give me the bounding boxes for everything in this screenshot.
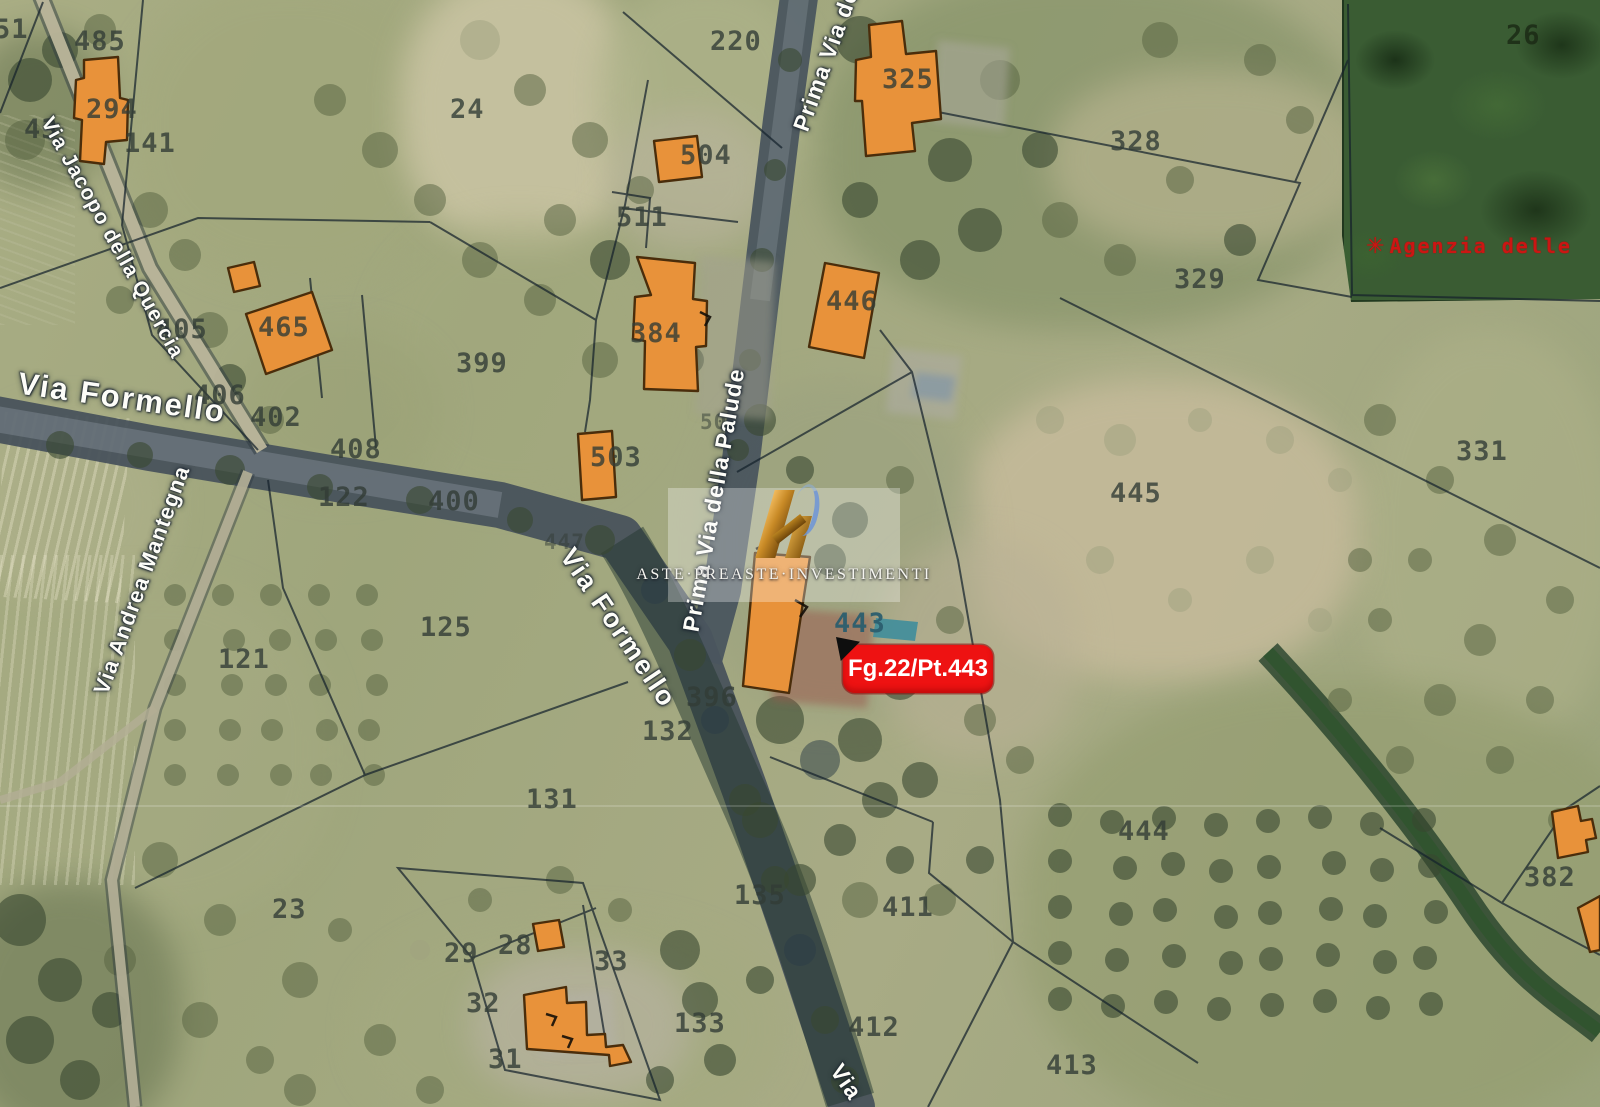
parcel-number-384: 384 — [630, 318, 682, 349]
parcel-number-121: 121 — [218, 644, 270, 675]
parcel-number-26: 26 — [1506, 20, 1541, 51]
parcel-number-131: 131 — [526, 784, 578, 815]
parcel-number-485: 485 — [74, 26, 126, 57]
parcel-number-51: 51 — [0, 14, 29, 45]
parcel-number-408: 408 — [330, 434, 382, 465]
parcel-number-325: 325 — [882, 64, 934, 95]
watermark: Aste·Preaste·Investimenti — [668, 488, 900, 602]
parcel-number-135: 135 — [734, 880, 786, 911]
parcel-number-122: 122 — [318, 482, 370, 513]
parcel-number-400: 400 — [428, 486, 480, 517]
watermark-brand: Aste·Preaste·Investimenti — [636, 566, 931, 584]
building-382-annex — [1578, 896, 1600, 952]
parcel-number-402: 402 — [250, 402, 302, 433]
building-465-annex — [228, 262, 260, 292]
parcel-number-399: 399 — [456, 348, 508, 379]
parcel-number-511: 511 — [616, 202, 668, 233]
parcel-number-141: 141 — [124, 128, 176, 159]
parcel-number-382: 382 — [1524, 862, 1576, 893]
parcel-number-32: 32 — [466, 988, 501, 1019]
parcel-number-443: 443 — [834, 608, 886, 639]
parcel-number-29: 29 — [444, 938, 479, 969]
parcel-number-132: 132 — [642, 716, 694, 747]
parcel-number-396: 396 — [686, 682, 738, 713]
minor-paths — [0, 0, 262, 1107]
parcel-pin-label[interactable]: Fg.22/Pt.443 — [843, 645, 993, 693]
agenzia-entrate-seal-icon: ✳ — [1366, 235, 1384, 257]
parcel-number-125: 125 — [420, 612, 472, 643]
pin-text: Fg.22/Pt.443 — [848, 655, 988, 683]
parcel-number-31: 31 — [488, 1044, 523, 1075]
parcel-number-23: 23 — [272, 894, 307, 925]
building-28-annex — [533, 920, 564, 951]
parcel-number-24: 24 — [450, 94, 485, 125]
parcel-number-294: 294 — [86, 94, 138, 125]
parcel-number-503: 503 — [590, 442, 642, 473]
parcel-number-445: 445 — [1110, 478, 1162, 509]
attribution: ✳ Agenzia delle — [1366, 234, 1572, 258]
parcel-number-28: 28 — [498, 930, 533, 961]
parcel-number-446: 446 — [826, 286, 878, 317]
parcel-number-465: 465 — [258, 312, 310, 343]
parcel-number-411: 411 — [882, 892, 934, 923]
parcel-number-413: 413 — [1046, 1050, 1098, 1081]
parcel-number-33: 33 — [594, 946, 629, 977]
building-382 — [1552, 806, 1596, 858]
watermark-logo-icon — [749, 490, 819, 560]
parcel-number-331: 331 — [1456, 436, 1508, 467]
parcel-number-329: 329 — [1174, 264, 1226, 295]
parcel-number-504: 504 — [680, 140, 732, 171]
parcel-number-444: 444 — [1118, 816, 1170, 847]
parcel-number-220: 220 — [710, 26, 762, 57]
parcel-number-133: 133 — [674, 1008, 726, 1039]
cadastral-map-viewport[interactable]: 5148529443141220245045113253283292633140… — [0, 0, 1600, 1107]
attribution-label: Agenzia delle — [1389, 234, 1572, 258]
parcel-number-328: 328 — [1110, 126, 1162, 157]
parcel-number-412: 412 — [848, 1012, 900, 1043]
